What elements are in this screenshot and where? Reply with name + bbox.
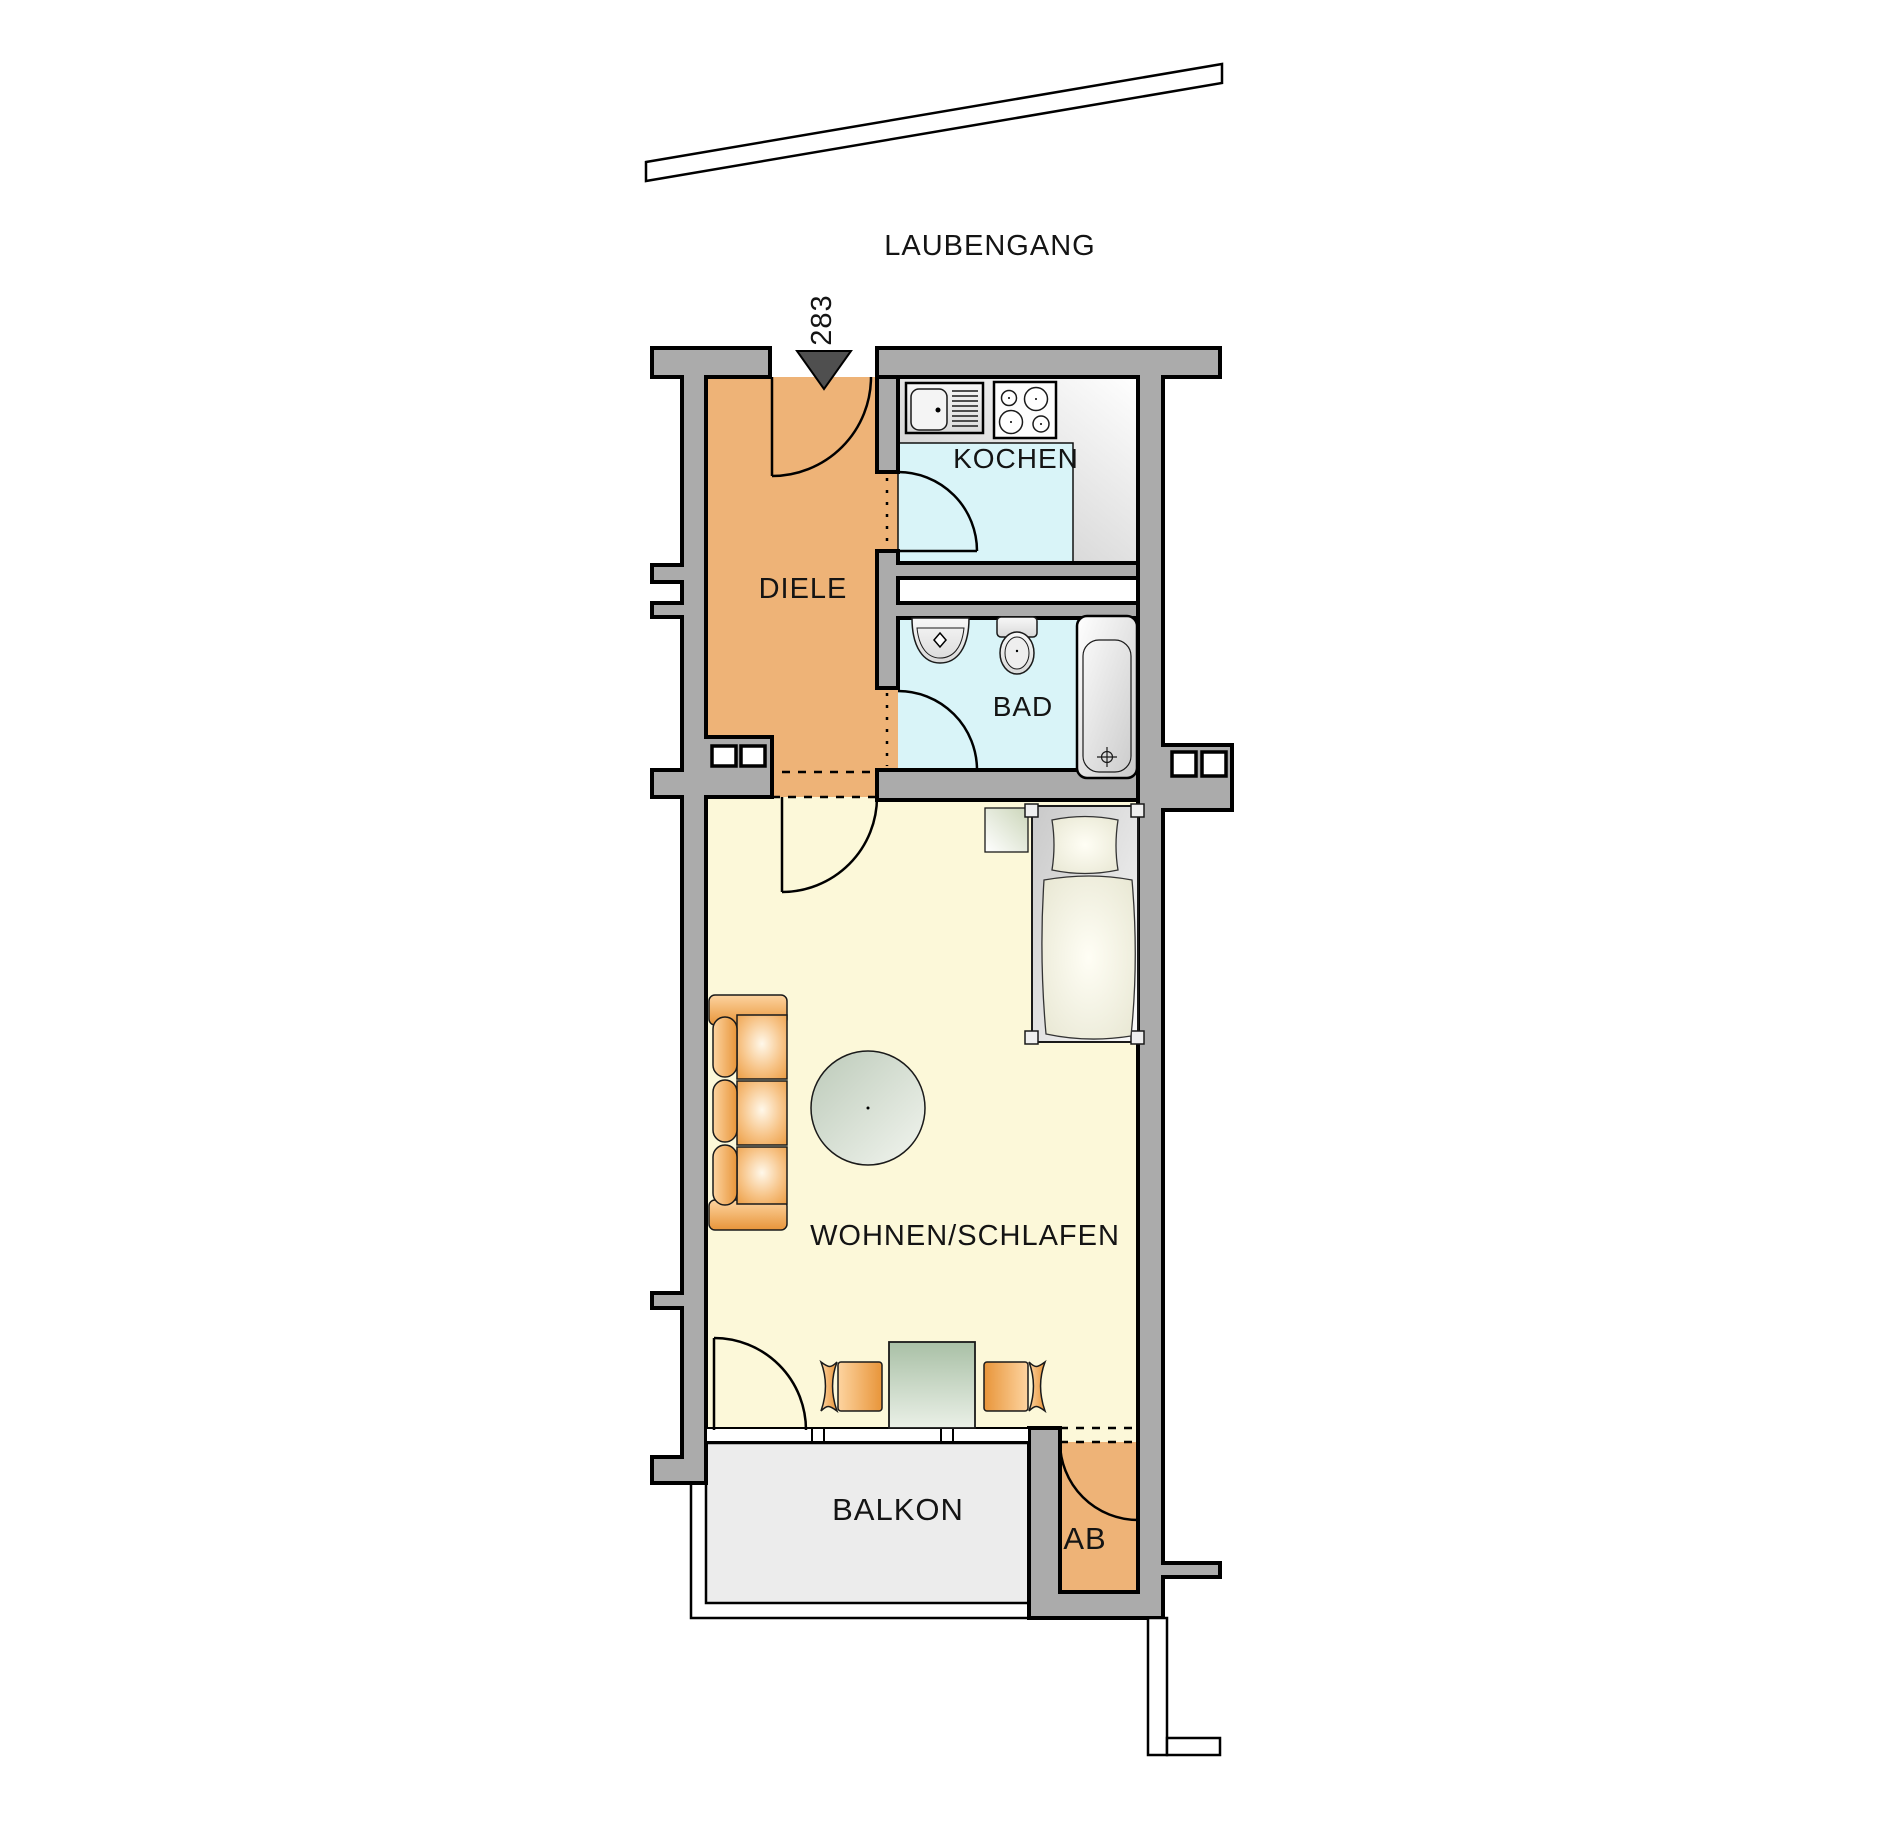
label-balkon: BALKON [832, 1492, 964, 1527]
duct-box-right-2 [1202, 752, 1226, 776]
label-entry-number: 283 [806, 294, 838, 345]
bed-icon [1025, 804, 1144, 1044]
label-ab: AB [1063, 1521, 1106, 1556]
pillow [1052, 817, 1118, 874]
label-wohnen: WOHNEN/SCHLAFEN [810, 1220, 1120, 1252]
sofa-icon [709, 995, 787, 1230]
chair-left-icon [821, 1362, 882, 1411]
wall-divider-upper [877, 377, 898, 472]
toilet-icon [997, 617, 1037, 674]
ab-top-strip [1060, 1428, 1138, 1442]
diele-passage-floor [772, 772, 877, 797]
floor-plan: LAUBENGANG 283 KOCHEN DIELE BAD WOHNEN/S… [0, 0, 1883, 1837]
window-band [706, 1428, 1029, 1442]
chair-right-icon [984, 1362, 1045, 1411]
label-bad: BAD [993, 691, 1054, 722]
label-kochen: KOCHEN [953, 443, 1079, 474]
railing-right-horizontal [1167, 1738, 1220, 1755]
kitchen-fixtures [906, 382, 1056, 438]
duct-box-left-2 [741, 746, 765, 766]
label-diele: DIELE [759, 573, 848, 605]
duct-box-right-1 [1172, 752, 1196, 776]
duct-box-left-1 [712, 746, 736, 766]
dining-table-icon [889, 1342, 975, 1428]
sink-unit-icon [906, 383, 983, 433]
floor-plan-drawing: LAUBENGANG 283 KOCHEN DIELE BAD WOHNEN/S… [0, 0, 1883, 1837]
label-laubengang: LAUBENGANG [884, 230, 1095, 262]
balcony-window [706, 1428, 1029, 1442]
bathtub-icon [1077, 616, 1137, 778]
duvet [1042, 876, 1135, 1039]
coffee-table-icon [811, 1051, 925, 1165]
room-ab-floor [1060, 1442, 1138, 1592]
nightstand-icon [985, 808, 1028, 852]
laubengang-railing [646, 64, 1222, 181]
stove-icon [994, 382, 1056, 438]
railing-right-vertical [1148, 1618, 1167, 1755]
